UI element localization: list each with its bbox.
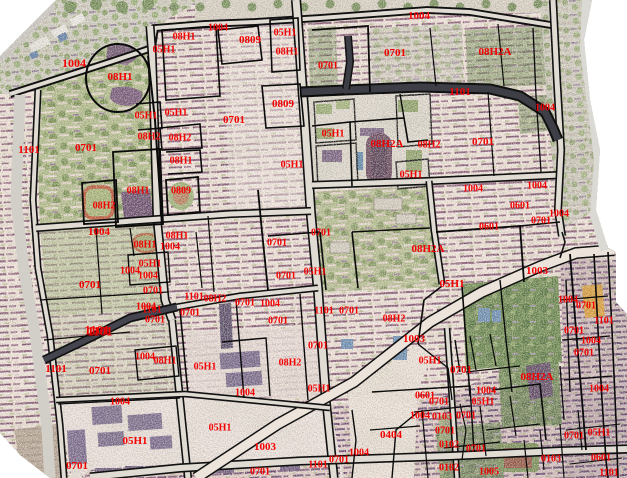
svg-text:08H2: 08H2 <box>418 140 441 151</box>
svg-text:0701: 0701 <box>235 298 255 309</box>
svg-text:0701: 0701 <box>267 238 287 249</box>
svg-text:1101: 1101 <box>599 468 618 478</box>
svg-text:05H1: 05H1 <box>153 45 176 56</box>
svg-text:1004: 1004 <box>62 56 86 70</box>
svg-text:1004: 1004 <box>558 295 578 306</box>
svg-text:0701: 0701 <box>276 271 296 282</box>
svg-text:08H1: 08H1 <box>166 231 189 242</box>
svg-text:1004: 1004 <box>160 242 180 253</box>
svg-text:0701: 0701 <box>66 460 88 472</box>
svg-text:05H1: 05H1 <box>281 160 304 171</box>
svg-text:08H2: 08H2 <box>204 294 227 305</box>
svg-text:05H1: 05H1 <box>419 356 442 367</box>
svg-text:1101: 1101 <box>18 144 39 156</box>
svg-text:08H2A: 08H2A <box>479 46 512 58</box>
svg-text:1004: 1004 <box>410 411 430 422</box>
svg-text:0701: 0701 <box>564 431 584 442</box>
svg-text:08H1: 08H1 <box>127 186 150 197</box>
svg-text:0701: 0701 <box>75 142 97 154</box>
svg-text:08H1: 08H1 <box>154 356 177 367</box>
svg-text:1004: 1004 <box>235 388 255 399</box>
svg-text:1004: 1004 <box>349 448 369 459</box>
svg-text:08H2A: 08H2A <box>371 138 404 150</box>
svg-text:1004: 1004 <box>476 386 496 397</box>
svg-text:0102: 0102 <box>439 463 459 474</box>
svg-text:0701: 0701 <box>143 286 163 297</box>
svg-text:1101: 1101 <box>308 460 327 471</box>
svg-text:05H1: 05H1 <box>304 267 327 278</box>
svg-text:0701: 0701 <box>223 114 245 126</box>
svg-text:05H1: 05H1 <box>139 259 162 270</box>
svg-text:0601: 0601 <box>479 222 499 233</box>
svg-text:0701: 0701 <box>435 426 455 437</box>
svg-text:1003: 1003 <box>254 441 277 453</box>
svg-text:0701: 0701 <box>145 315 165 326</box>
svg-text:1004: 1004 <box>110 397 130 408</box>
svg-text:1101: 1101 <box>87 324 112 339</box>
svg-text:0701: 0701 <box>180 308 200 319</box>
svg-text:1003: 1003 <box>403 333 426 345</box>
svg-text:0701: 0701 <box>472 136 494 148</box>
svg-text:0809: 0809 <box>171 186 191 197</box>
svg-text:0103: 0103 <box>432 412 452 423</box>
svg-text:1004: 1004 <box>135 352 155 363</box>
svg-text:0701: 0701 <box>250 467 270 478</box>
svg-text:0701: 0701 <box>308 341 328 352</box>
svg-text:08H2: 08H2 <box>279 358 302 369</box>
svg-text:0701: 0701 <box>384 47 406 59</box>
svg-text:1004: 1004 <box>88 226 111 238</box>
svg-text:08H1: 08H1 <box>276 47 299 58</box>
svg-text:08H2: 08H2 <box>138 132 161 143</box>
svg-text:05H1: 05H1 <box>274 28 297 39</box>
svg-text:0701: 0701 <box>531 216 551 227</box>
svg-text:05H1: 05H1 <box>194 362 217 373</box>
svg-text:0809: 0809 <box>239 34 262 46</box>
svg-text:1101: 1101 <box>314 306 333 317</box>
svg-text:0701: 0701 <box>466 444 486 455</box>
svg-text:08H1: 08H1 <box>107 71 132 83</box>
svg-text:1003: 1003 <box>526 265 549 277</box>
svg-text:08H2: 08H2 <box>169 133 192 144</box>
svg-text:08H2: 08H2 <box>383 314 406 325</box>
svg-text:1004: 1004 <box>138 271 158 282</box>
svg-text:1101: 1101 <box>449 86 470 98</box>
svg-text:0701: 0701 <box>79 279 101 291</box>
svg-text:1004: 1004 <box>527 181 547 192</box>
svg-text:05H1: 05H1 <box>122 435 147 447</box>
svg-text:08H2: 08H2 <box>93 201 116 212</box>
svg-text:1005: 1005 <box>479 467 499 478</box>
svg-text:1004: 1004 <box>260 299 280 310</box>
svg-text:1004: 1004 <box>463 184 483 195</box>
svg-text:05H1: 05H1 <box>588 428 611 439</box>
svg-text:1004: 1004 <box>120 266 140 277</box>
svg-text:1004: 1004 <box>408 10 431 22</box>
svg-text:08H2A: 08H2A <box>521 371 554 383</box>
svg-text:0601: 0601 <box>591 453 611 464</box>
svg-text:1004: 1004 <box>581 336 601 347</box>
svg-text:1004: 1004 <box>535 103 555 114</box>
svg-text:0601: 0601 <box>510 201 530 212</box>
svg-text:0701: 0701 <box>574 348 594 359</box>
svg-text:08H1: 08H1 <box>170 156 193 167</box>
svg-text:1101: 1101 <box>184 292 203 303</box>
svg-text:0701: 0701 <box>268 316 288 327</box>
svg-text:0701: 0701 <box>311 228 331 239</box>
svg-text:1004: 1004 <box>589 384 609 395</box>
svg-text:1004: 1004 <box>208 23 228 34</box>
svg-text:0701: 0701 <box>89 365 111 377</box>
svg-text:1101: 1101 <box>594 316 613 327</box>
svg-text:1004: 1004 <box>549 209 569 220</box>
svg-text:0103: 0103 <box>541 454 561 465</box>
svg-text:0701: 0701 <box>329 455 349 466</box>
svg-text:0701: 0701 <box>450 364 472 376</box>
svg-text:0701: 0701 <box>456 411 476 422</box>
svg-text:0404: 0404 <box>380 429 403 441</box>
svg-text:0701: 0701 <box>318 61 338 72</box>
svg-text:05H1: 05H1 <box>472 397 495 408</box>
svg-text:05H1: 05H1 <box>209 423 232 434</box>
svg-text:1101: 1101 <box>45 363 66 375</box>
svg-text:05H1: 05H1 <box>439 278 464 290</box>
svg-text:08H2A: 08H2A <box>412 243 445 255</box>
svg-text:05H1: 05H1 <box>135 111 158 122</box>
svg-text:05H1: 05H1 <box>165 108 188 119</box>
svg-text:05H1: 05H1 <box>400 170 423 181</box>
svg-text:0809: 0809 <box>272 98 295 110</box>
svg-text:08H1: 08H1 <box>134 240 157 251</box>
svg-text:0701: 0701 <box>429 397 449 408</box>
svg-text:1101: 1101 <box>142 305 161 316</box>
svg-text:05H1: 05H1 <box>308 384 331 395</box>
svg-text:0701: 0701 <box>339 306 359 317</box>
svg-text:0701: 0701 <box>576 301 596 312</box>
svg-text:0102: 0102 <box>439 440 459 451</box>
svg-text:08H1: 08H1 <box>173 32 196 43</box>
svg-text:05H1: 05H1 <box>322 129 345 140</box>
